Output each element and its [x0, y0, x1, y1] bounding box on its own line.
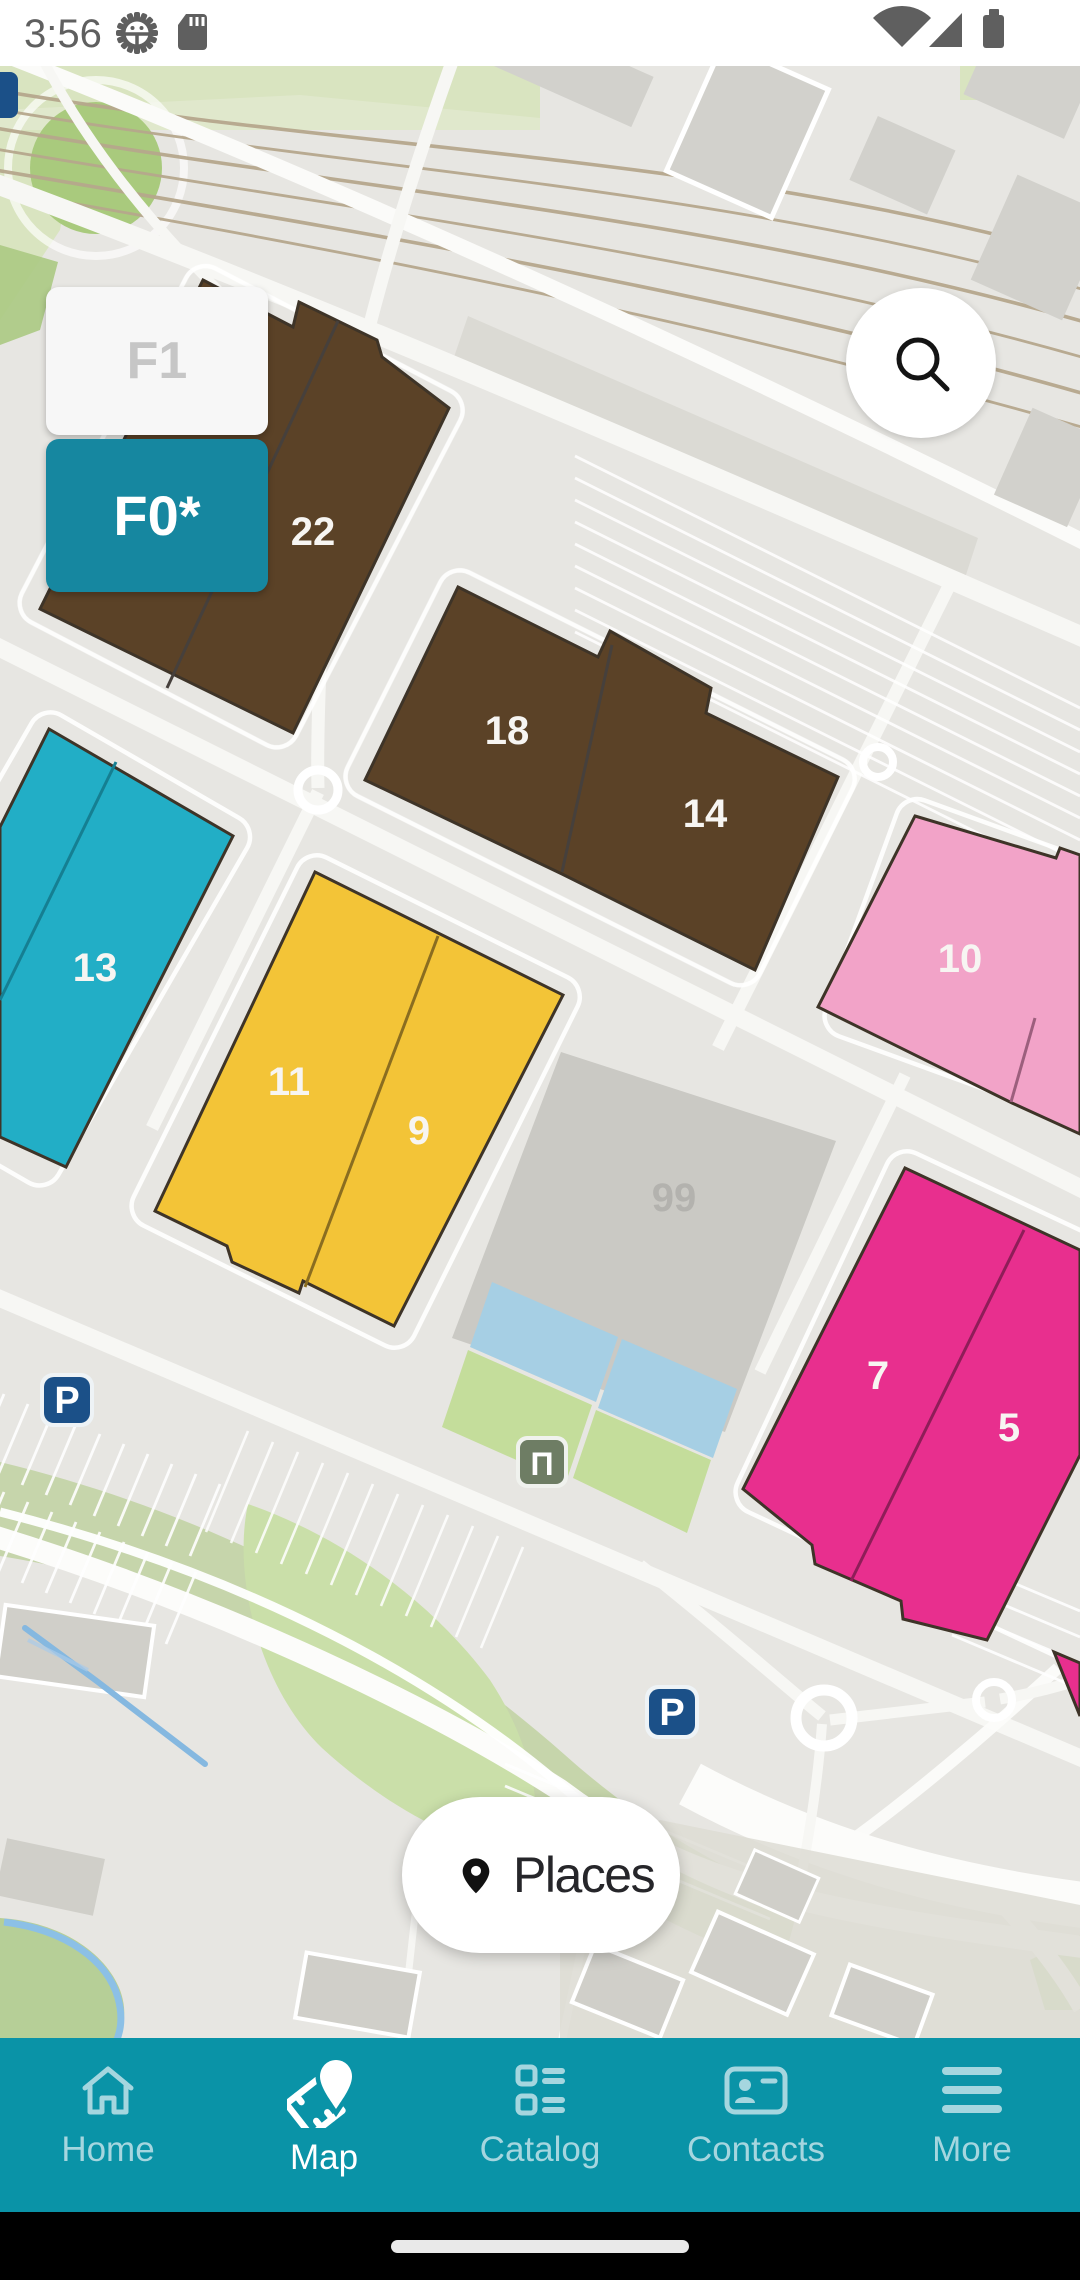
svg-text:99: 99 [652, 1176, 697, 1220]
svg-text:18: 18 [485, 709, 530, 753]
svg-text:14: 14 [683, 792, 728, 836]
svg-text:7: 7 [867, 1354, 889, 1398]
svg-text:13: 13 [73, 946, 118, 990]
svg-text:9: 9 [408, 1109, 430, 1153]
svg-text:5: 5 [998, 1406, 1020, 1450]
svg-text:P: P [659, 1692, 684, 1734]
svg-text:22: 22 [291, 510, 336, 554]
svg-text:P: P [54, 1380, 79, 1422]
svg-text:Π: Π [530, 1446, 553, 1482]
svg-text:10: 10 [938, 937, 983, 981]
svg-text:11: 11 [268, 1060, 310, 1104]
